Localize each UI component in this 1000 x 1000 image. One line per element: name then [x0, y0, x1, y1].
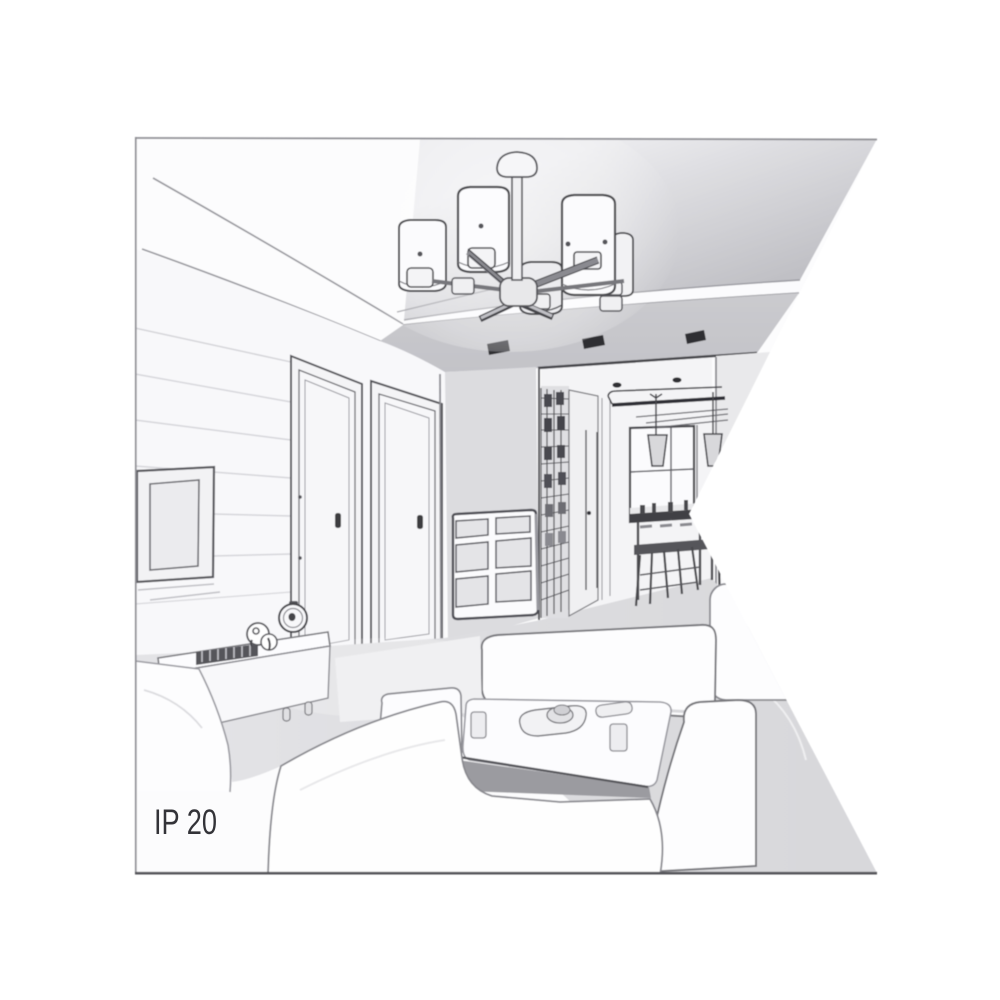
svg-text:IP 20: IP 20: [154, 803, 217, 842]
